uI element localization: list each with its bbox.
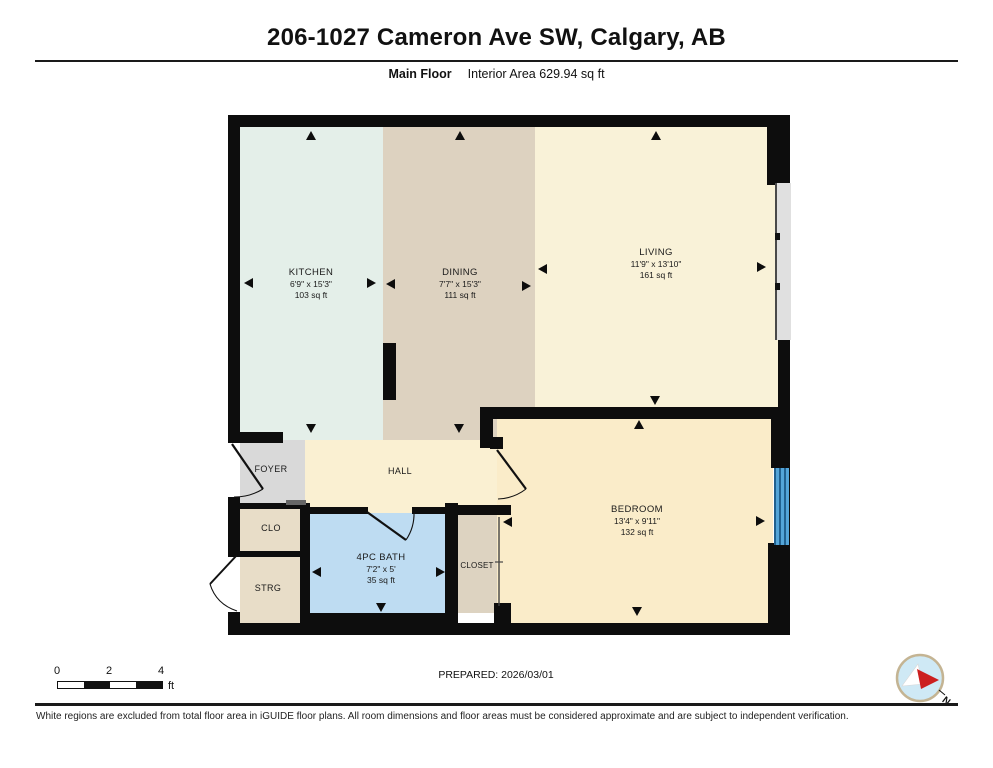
room-label-strg: STRG <box>255 583 282 595</box>
dimension-arrow-right <box>756 516 765 526</box>
wall <box>228 115 790 127</box>
interior-area-label: Interior Area 629.94 sq ft <box>468 67 605 81</box>
dimension-arrow-left <box>538 264 547 274</box>
dimension-arrow-left <box>244 278 253 288</box>
dimension-arrow-left <box>312 567 321 577</box>
dimension-arrow-up <box>634 420 644 429</box>
door-arc-strg <box>210 584 237 611</box>
floor-subtitle: Main Floor Interior Area 629.94 sq ft <box>0 67 993 81</box>
wall <box>228 115 240 443</box>
room-label-kitchen: KITCHEN 6'9" x 15'3" 103 sq ft <box>289 267 334 301</box>
compass-icon: N <box>893 652 957 706</box>
dimension-arrow-down <box>306 424 316 433</box>
wall <box>240 432 283 443</box>
wall <box>310 613 452 623</box>
wall <box>228 551 308 557</box>
disclaimer-text: White regions are excluded from total fl… <box>36 711 966 722</box>
scale-tick-4: 4 <box>158 665 164 677</box>
wall <box>383 343 396 400</box>
dimension-arrow-down <box>454 424 464 433</box>
title-divider <box>35 60 958 62</box>
wall <box>300 503 310 623</box>
wall <box>228 612 240 635</box>
wall <box>768 543 790 635</box>
dimension-arrow-right <box>757 262 766 272</box>
wall <box>445 505 511 515</box>
dimension-arrow-up <box>455 131 465 140</box>
dimension-arrow-right <box>522 281 531 291</box>
room-label-hall: HALL <box>388 466 412 478</box>
dimension-arrow-down <box>650 396 660 405</box>
wall <box>767 115 790 185</box>
scale-tick-2: 2 <box>106 665 112 677</box>
room-label-foyer: FOYER <box>254 464 287 476</box>
scale-segment <box>58 682 84 688</box>
floorplan-page: 206-1027 Cameron Ave SW, Calgary, AB Mai… <box>0 0 993 768</box>
window-bedroom <box>774 468 789 545</box>
scale-segment <box>136 682 162 688</box>
dimension-arrow-up <box>651 131 661 140</box>
wall <box>228 497 240 555</box>
dimension-arrow-down <box>632 607 642 616</box>
window-tick <box>775 283 780 290</box>
dimension-arrow-right <box>367 278 376 288</box>
dimension-arrow-left <box>386 279 395 289</box>
room-label-bath: 4PC BATH 7'2" x 5' 35 sq ft <box>357 552 406 586</box>
wall <box>228 623 790 635</box>
wall <box>494 603 511 623</box>
window-tick <box>775 233 780 240</box>
room-label-bedroom: BEDROOM 13'4" x 9'11" 132 sq ft <box>611 504 663 538</box>
prepared-date-label: PREPARED: 2026/03/01 <box>346 669 646 681</box>
wall <box>300 507 368 514</box>
scale-segment <box>84 682 110 688</box>
scale-segment <box>110 682 136 688</box>
wall <box>480 407 790 419</box>
scale-unit-label: ft <box>168 680 174 692</box>
door-leaf-strg <box>210 555 237 584</box>
wall <box>490 437 503 449</box>
room-label-living: LIVING 11'9" x 13'10" 161 sq ft <box>631 247 682 281</box>
floor-label: Main Floor <box>388 67 451 81</box>
dimension-arrow-left <box>503 517 512 527</box>
window-living <box>775 183 791 340</box>
page-title: 206-1027 Cameron Ave SW, Calgary, AB <box>0 24 993 52</box>
scale-tick-0: 0 <box>54 665 60 677</box>
room-label-dining: DINING 7'7" x 15'3" 111 sq ft <box>439 267 481 301</box>
footer-divider <box>35 703 958 706</box>
scale-bar <box>57 681 163 689</box>
dimension-arrow-down <box>376 603 386 612</box>
dimension-arrow-right <box>436 567 445 577</box>
threshold <box>286 500 306 505</box>
dimension-arrow-up <box>306 131 316 140</box>
wall <box>445 503 458 623</box>
room-label-closet: CLOSET <box>460 561 493 571</box>
room-label-clo: CLO <box>261 523 281 535</box>
